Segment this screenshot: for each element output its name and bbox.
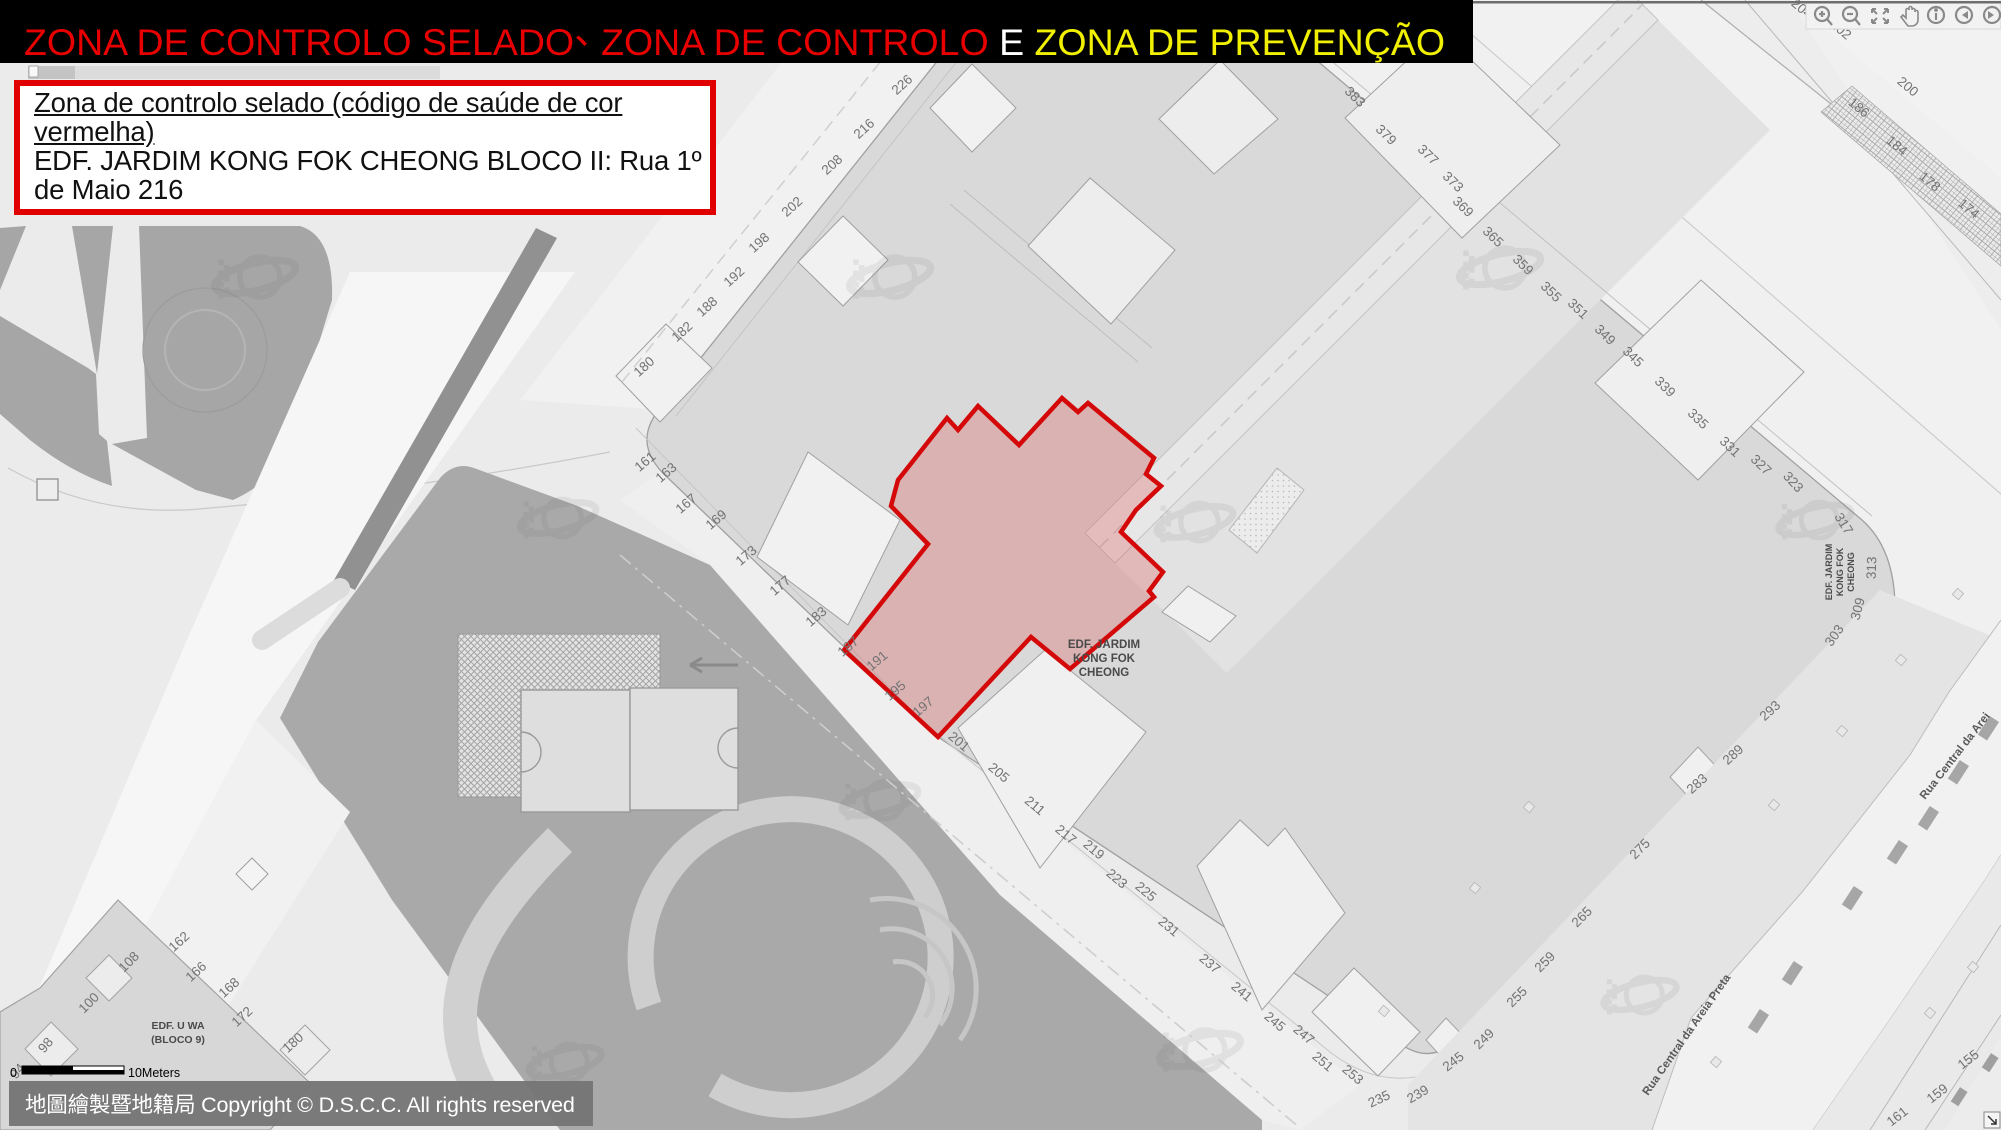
svg-text:313: 313 — [1864, 556, 1880, 579]
svg-text:0: 0 — [10, 1066, 17, 1080]
svg-text:CHEONG: CHEONG — [1079, 667, 1130, 679]
svg-text:KONG FOK: KONG FOK — [1073, 653, 1136, 665]
svg-text:EDF. JARDIM: EDF. JARDIM — [1824, 544, 1834, 601]
svg-text:10Meters: 10Meters — [128, 1066, 180, 1080]
svg-text:EDF. U WA: EDF. U WA — [151, 1020, 205, 1032]
svg-text:CHEONG: CHEONG — [1846, 552, 1856, 592]
svg-text:(BLOCO 9): (BLOCO 9) — [151, 1034, 205, 1046]
svg-text:EDF. JARDIM: EDF. JARDIM — [1068, 639, 1140, 651]
svg-text:KONG FOK: KONG FOK — [1835, 547, 1845, 596]
